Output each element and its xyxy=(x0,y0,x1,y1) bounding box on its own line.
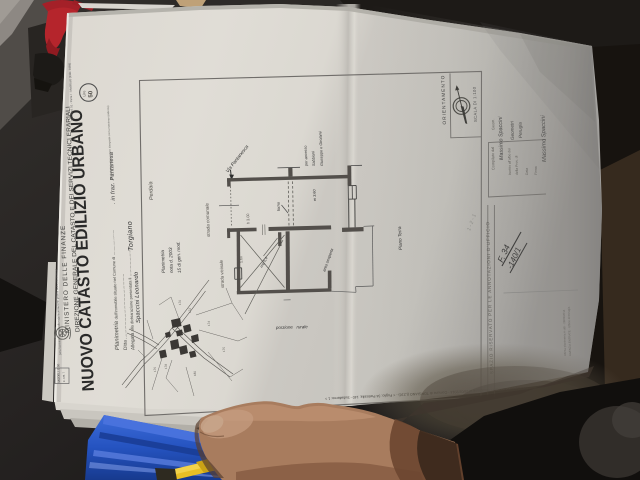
svg-text:175: 175 xyxy=(222,347,226,353)
svg-text:h 3.00: h 3.00 xyxy=(246,213,250,224)
svg-text:176: 176 xyxy=(153,367,157,373)
svg-text:Sabbioni: Sabbioni xyxy=(311,151,316,166)
svg-text:MODELLO 50: MODELLO 50 xyxy=(56,363,61,382)
svg-text:E. CM. 7: E. CM. 7 xyxy=(62,371,66,382)
svg-text:178: 178 xyxy=(164,364,168,370)
svg-text:Lire: Lire xyxy=(82,90,86,96)
svg-text:Planimetria: Planimetria xyxy=(160,250,166,274)
svg-text:porzione rurale: porzione rurale xyxy=(275,324,308,330)
svg-text:172: 172 xyxy=(188,308,192,314)
svg-text:174: 174 xyxy=(207,321,211,327)
svg-text:50: 50 xyxy=(88,90,94,98)
svg-text:Perdaia: Perdaia xyxy=(148,181,155,200)
svg-text:180: 180 xyxy=(193,371,197,377)
svg-text:forno: forno xyxy=(276,201,281,211)
svg-text:1.60: 1.60 xyxy=(239,256,243,263)
svg-text:m 3.60: m 3.60 xyxy=(312,188,317,201)
svg-text:170: 170 xyxy=(178,300,182,306)
svg-text:Torgiano: Torgiano xyxy=(127,221,135,251)
